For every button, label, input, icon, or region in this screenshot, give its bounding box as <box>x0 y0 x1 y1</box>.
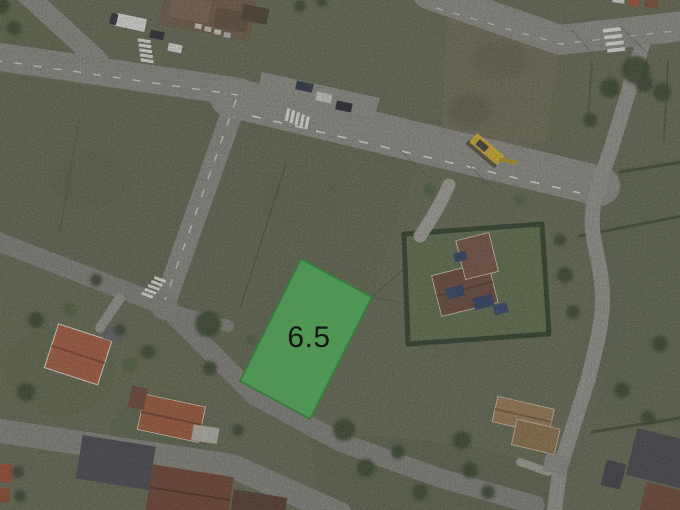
parcel-area-label: 6.5 <box>287 321 330 354</box>
grain-texture-light <box>0 0 680 510</box>
satellite-map-image: 6.5 <box>0 0 680 510</box>
aerial-scene: 6.5 <box>0 0 680 510</box>
